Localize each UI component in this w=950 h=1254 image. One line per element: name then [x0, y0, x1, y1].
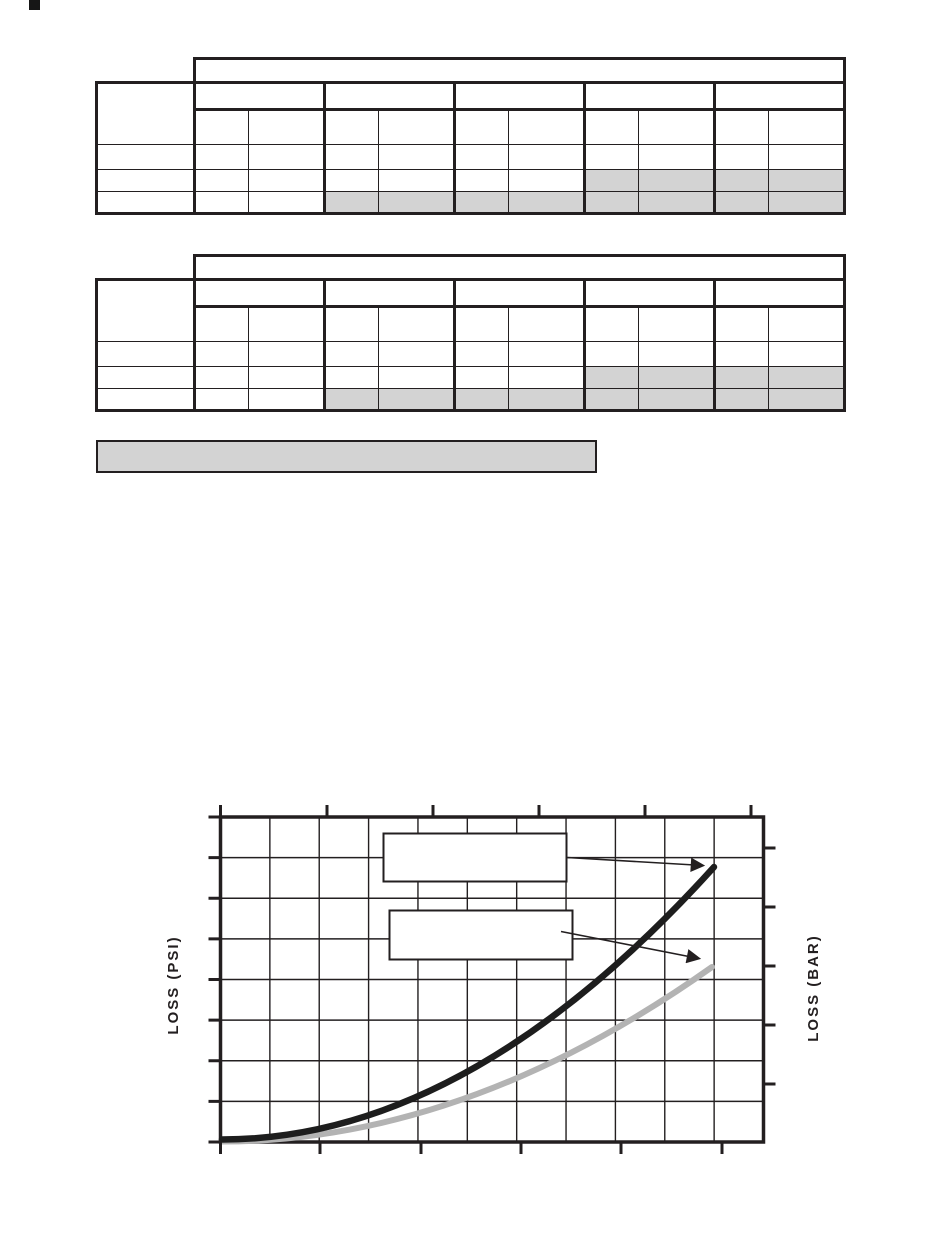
data-cell — [195, 192, 249, 214]
shaded-data-cell — [715, 367, 769, 389]
data-cell — [509, 342, 585, 367]
data-cell — [455, 367, 509, 389]
callout-arrow-1 — [567, 858, 703, 866]
lower-spec-table — [95, 254, 846, 412]
shaded-data-cell — [585, 367, 639, 389]
sub-column-header-cell — [639, 110, 715, 145]
shaded-data-cell — [639, 367, 715, 389]
shaded-data-cell — [639, 192, 715, 214]
shaded-data-cell — [509, 192, 585, 214]
sub-column-header-cell — [455, 110, 509, 145]
sub-column-header-cell — [379, 307, 455, 342]
data-cell — [249, 389, 325, 411]
data-cell — [249, 192, 325, 214]
sub-column-header-cell — [249, 110, 325, 145]
data-cell — [195, 170, 249, 192]
sub-column-header-cell — [639, 307, 715, 342]
shaded-data-cell — [639, 170, 715, 192]
shaded-data-cell — [769, 170, 845, 192]
data-cell — [455, 145, 509, 170]
pressure-loss-chart — [0, 776, 950, 1186]
shaded-data-cell — [585, 389, 639, 411]
data-cell — [325, 342, 379, 367]
data-cell — [769, 145, 845, 170]
data-cell — [509, 367, 585, 389]
data-cell — [195, 145, 249, 170]
column-group-header-cell — [325, 83, 455, 110]
column-group-header-cell — [325, 280, 455, 307]
upper-spec-table — [95, 57, 846, 215]
sub-column-header-cell — [195, 307, 249, 342]
scan-artifact-mark — [29, 0, 40, 10]
data-cell — [639, 145, 715, 170]
shaded-data-cell — [455, 389, 509, 411]
shaded-data-cell — [455, 192, 509, 214]
data-cell — [325, 367, 379, 389]
data-cell — [195, 367, 249, 389]
column-group-header-cell — [715, 280, 845, 307]
shaded-data-cell — [379, 192, 455, 214]
shaded-data-cell — [639, 389, 715, 411]
data-cell — [195, 389, 249, 411]
row-header-cell — [97, 342, 195, 367]
table-corner-spacer — [97, 59, 195, 83]
data-cell — [325, 170, 379, 192]
table-corner-spacer — [97, 256, 195, 280]
shaded-data-cell — [769, 367, 845, 389]
sub-column-header-cell — [585, 110, 639, 145]
data-cell — [249, 342, 325, 367]
sub-column-header-cell — [509, 110, 585, 145]
sub-column-header-cell — [325, 110, 379, 145]
column-group-header-cell — [195, 83, 325, 110]
callout-box-1 — [384, 834, 567, 882]
row-header-stub-cell — [97, 280, 195, 342]
sub-column-header-cell — [585, 307, 639, 342]
row-header-cell — [97, 170, 195, 192]
sub-column-header-cell — [715, 307, 769, 342]
data-cell — [455, 170, 509, 192]
data-cell — [249, 170, 325, 192]
data-cell — [715, 145, 769, 170]
data-cell — [639, 342, 715, 367]
shaded-data-cell — [769, 389, 845, 411]
data-cell — [585, 145, 639, 170]
data-cell — [509, 145, 585, 170]
shaded-data-cell — [715, 192, 769, 214]
data-cell — [249, 145, 325, 170]
shaded-note-bar — [96, 440, 597, 473]
table-title-band — [195, 256, 845, 280]
data-cell — [455, 342, 509, 367]
data-cell — [249, 367, 325, 389]
row-header-cell — [97, 145, 195, 170]
data-cell — [769, 342, 845, 367]
data-cell — [325, 145, 379, 170]
column-group-header-cell — [455, 83, 585, 110]
sub-column-header-cell — [195, 110, 249, 145]
column-group-header-cell — [585, 83, 715, 110]
data-cell — [379, 145, 455, 170]
sub-column-header-cell — [249, 307, 325, 342]
sub-column-header-cell — [715, 110, 769, 145]
row-header-stub-cell — [97, 83, 195, 145]
data-cell — [195, 342, 249, 367]
sub-column-header-cell — [379, 110, 455, 145]
shaded-data-cell — [509, 389, 585, 411]
data-cell — [585, 342, 639, 367]
column-group-header-cell — [455, 280, 585, 307]
sub-column-header-cell — [769, 110, 845, 145]
column-group-header-cell — [585, 280, 715, 307]
shaded-data-cell — [715, 170, 769, 192]
shaded-data-cell — [379, 389, 455, 411]
document-page: LOSS (PSI) LOSS (BAR) — [0, 0, 950, 1254]
column-group-header-cell — [715, 83, 845, 110]
data-cell — [509, 170, 585, 192]
data-cell — [379, 170, 455, 192]
row-header-cell — [97, 192, 195, 214]
row-header-cell — [97, 389, 195, 411]
shaded-data-cell — [585, 192, 639, 214]
sub-column-header-cell — [509, 307, 585, 342]
shaded-data-cell — [715, 389, 769, 411]
sub-column-header-cell — [455, 307, 509, 342]
column-group-header-cell — [195, 280, 325, 307]
sub-column-header-cell — [769, 307, 845, 342]
shaded-data-cell — [585, 170, 639, 192]
shaded-data-cell — [769, 192, 845, 214]
data-cell — [379, 342, 455, 367]
shaded-data-cell — [325, 192, 379, 214]
callout-box-2 — [390, 911, 573, 960]
data-cell — [379, 367, 455, 389]
shaded-data-cell — [325, 389, 379, 411]
sub-column-header-cell — [325, 307, 379, 342]
data-cell — [715, 342, 769, 367]
row-header-cell — [97, 367, 195, 389]
table-title-band — [195, 59, 845, 83]
